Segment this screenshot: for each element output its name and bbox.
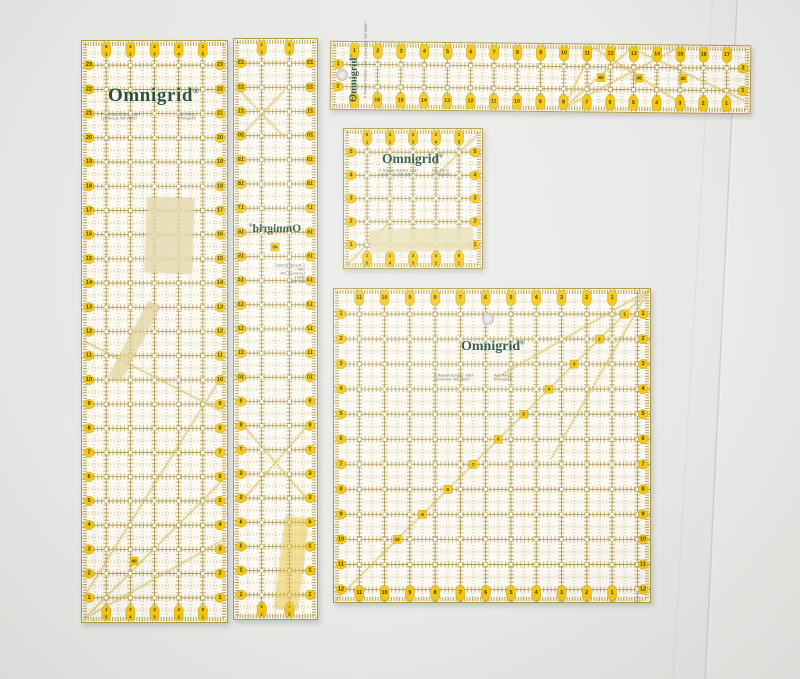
grid-number: 5 (87, 498, 90, 504)
grid-number: 13 (631, 51, 637, 57)
grid-number: 12 (86, 329, 92, 335)
grid-number: 9 (239, 399, 242, 405)
brand-text: Omnigrid (461, 339, 520, 354)
brand-omnigrid: Omnigrid® (108, 85, 200, 107)
grid-number: 16 (701, 52, 707, 58)
grid-number: 14 (237, 278, 244, 284)
grid-number: 18 (238, 181, 244, 187)
grid-number: 11 (584, 50, 590, 56)
grid-number: 8 (641, 486, 644, 492)
grid-number: 7 (472, 462, 475, 467)
grid-number: 1 (623, 312, 626, 317)
grid-number: 11 (491, 98, 497, 104)
grid-number: 2 (218, 571, 221, 577)
fine-print: © Randal Schafer 1987 Lynnwood, WA 98037 (379, 169, 418, 177)
grid-number: 7 (493, 49, 496, 55)
grid-number: 5 (218, 498, 221, 504)
grid-number: 16 (374, 97, 380, 103)
grid-number: 7 (641, 461, 644, 467)
grid-number: 22 (238, 84, 244, 90)
fine-print: Pat. Pend. Omnigrid® (494, 374, 512, 382)
fine-print: © Randal Schafer 1987 Lynnwood, WA 98037 (434, 374, 473, 382)
brand-text: Omnigrid (108, 85, 193, 106)
grid-number: 8 (434, 590, 437, 596)
grid-number: 1 (473, 242, 476, 248)
grid-number: 23 (217, 62, 223, 68)
grid-number: 15 (86, 256, 92, 262)
grid-number: 11 (356, 295, 362, 301)
grid-number: 6 (308, 471, 311, 477)
registered-mark: ® (193, 87, 200, 96)
grid-number: 1 (87, 595, 90, 601)
grid-number: 9 (87, 401, 90, 407)
grid-number: 3 (218, 546, 221, 552)
grid-number: 2 (702, 101, 705, 107)
grid-number: 3 (239, 544, 242, 550)
grid-number: 15 (677, 51, 683, 57)
grid-number: 15 (398, 98, 404, 104)
grid-number: 9 (218, 401, 221, 407)
grid-number: 7 (459, 295, 462, 301)
grid-number: 6 (469, 49, 472, 55)
grid-number: 6 (484, 295, 487, 301)
grid-number: 5 (509, 295, 512, 301)
grid-number: 12 (217, 329, 223, 335)
grid-number: 16 (307, 229, 313, 235)
grid-number: 6 (239, 471, 242, 477)
brand-text: Omnigrid (253, 223, 302, 235)
grid-number: 3 (473, 196, 476, 202)
grid-number: 17 (238, 205, 244, 211)
grid-number: 10 (382, 295, 388, 301)
grid-number: 19 (86, 159, 92, 165)
grid-number: 1 (218, 595, 221, 601)
grid-number: 3 (641, 361, 644, 367)
grid-number: 10 (395, 537, 401, 542)
grid-number: 6 (339, 436, 342, 442)
registered-mark: ® (249, 224, 253, 229)
grid-number: 13 (238, 302, 244, 308)
grid-number: 22 (86, 86, 92, 92)
ruler-3x18: 1234567891011121314151617171615141312111… (330, 41, 752, 114)
grid-number: 9 (641, 511, 644, 517)
grid-number: 3 (349, 196, 352, 202)
grid-number: 10 (561, 50, 567, 56)
grid-number: 2 (585, 590, 588, 596)
grid-number: 60 (598, 75, 604, 80)
grid-number: 8 (434, 295, 437, 301)
grid-number: 2 (641, 336, 644, 342)
grid-number: 10 (86, 377, 92, 383)
grid-number: 6 (609, 100, 612, 106)
ruler-6x6: 514233241515243342515432154321 Omnigrid®… (343, 128, 483, 269)
grid-number: 11 (640, 561, 646, 567)
brand-text: Omnigrid (348, 58, 359, 102)
grid-number: 10 (238, 374, 244, 380)
grid-number: 4 (548, 387, 551, 392)
grid-number: 14 (306, 278, 313, 284)
grid-number: 5 (473, 149, 476, 155)
grid-number: 17 (724, 52, 730, 58)
grid-number: 5 (349, 149, 352, 155)
grid-number: 13 (307, 302, 313, 308)
grid-number: 19 (307, 157, 313, 163)
grid-number: 9 (408, 295, 411, 301)
brand-omnigrid: Omnigrid® (382, 151, 443, 167)
grid-number: 2 (585, 295, 588, 301)
grid-number: 16 (86, 232, 92, 238)
grid-number: 2 (473, 219, 476, 225)
grid-number: 2 (742, 65, 745, 71)
grid-number: 22 (217, 86, 223, 92)
grid-number: 45 (272, 245, 278, 250)
grid-number: 7 (585, 99, 588, 105)
grid-number: 11 (238, 350, 244, 356)
grid-number: 19 (217, 159, 223, 165)
grid-number: 9 (539, 50, 542, 56)
grid-number: 12 (307, 326, 313, 332)
grid-number: 5 (632, 100, 635, 106)
grid-number: 5 (239, 495, 242, 501)
grid-number: 7 (239, 447, 242, 453)
grid-number: 9 (539, 99, 542, 105)
grid-number: 1 (337, 61, 340, 67)
grid-number: 5 (641, 411, 644, 417)
grid-number: 21 (238, 109, 244, 115)
grid-number: 5 (446, 49, 449, 55)
grid-number: 4 (423, 49, 426, 55)
grid-number: 6 (497, 437, 500, 442)
fine-print: © Randal Schafer 1987 Lynnwood, WA 98037 (101, 113, 140, 121)
grid-number: 2 (376, 48, 379, 54)
grid-number: 2 (87, 571, 90, 577)
grid-number: 1 (741, 88, 744, 94)
ruler-grid: 1110987654321111098765432112345678910111… (334, 289, 650, 602)
grid-number: 1 (725, 101, 728, 107)
grid-number: 8 (339, 486, 342, 492)
grid-number: 6 (87, 474, 90, 480)
grid-number: 18 (217, 183, 223, 189)
grid-number: 15 (307, 254, 313, 260)
grid-number: 11 (86, 353, 92, 359)
grid-number: 2 (308, 568, 311, 574)
grid-number: 3 (573, 362, 576, 367)
grid-number: 3 (308, 544, 311, 550)
grid-number: 17 (86, 207, 92, 213)
grid-number: 3 (339, 361, 342, 367)
grid-number: 20 (307, 133, 313, 139)
grid-number: 10 (217, 377, 223, 383)
grid-number: 3 (87, 546, 90, 552)
grid-number: 6 (641, 436, 644, 442)
ruler-grid: 1234567891011121314151617171615141312111… (331, 42, 751, 113)
grid-number: 1 (339, 311, 342, 317)
grid-number: 14 (654, 51, 660, 57)
registered-mark: ® (439, 154, 443, 160)
grid-number: 6 (218, 474, 221, 480)
grid-number: 11 (217, 353, 223, 359)
grid-number: 23 (238, 60, 244, 66)
grid-number: 6 (484, 590, 487, 596)
grid-number: 3 (560, 590, 563, 596)
grid-number: 3 (560, 295, 563, 301)
grid-number: 14 (421, 98, 427, 104)
grid-number: 5 (308, 495, 311, 501)
grid-number: 8 (446, 487, 449, 492)
registered-mark: ® (348, 54, 353, 57)
grid-number: 8 (308, 423, 311, 429)
grid-number: 5 (339, 411, 342, 417)
grid-number: 20 (238, 133, 244, 139)
brand-text: Omnigrid (382, 151, 439, 166)
grid-number: 20 (86, 135, 92, 141)
grid-number: 4 (535, 295, 538, 301)
grid-number: 2 (239, 568, 242, 574)
grid-number: 5 (509, 590, 512, 596)
grid-number: 60 (131, 559, 137, 564)
grid-number: 12 (467, 98, 473, 104)
grid-number: 5 (522, 412, 525, 417)
grid-number: 11 (307, 350, 313, 356)
grid-number: 1 (353, 48, 356, 54)
grid-number: 3 (678, 100, 681, 106)
grid-number: 13 (217, 304, 223, 310)
brand-omnigrid: Omnigrid® (461, 339, 525, 355)
grid-number: 23 (307, 60, 313, 66)
grid-number: 8 (239, 423, 242, 429)
grid-number: 7 (218, 450, 221, 456)
grid-number: 12 (338, 586, 344, 592)
grid-number: 11 (338, 561, 344, 567)
grid-number: 9 (308, 399, 311, 405)
grid-number: 23 (86, 62, 92, 68)
grid-number: 7 (459, 590, 462, 596)
grid-number: 10 (514, 99, 520, 105)
grid-number: 10 (338, 536, 344, 542)
grid-number: 1 (308, 592, 311, 598)
grid-number: 2 (336, 84, 339, 90)
grid-number: 14 (86, 280, 93, 286)
grid-number: 10 (640, 536, 646, 542)
grid-number: 45 (636, 76, 642, 81)
grid-number: 10 (307, 374, 313, 380)
grid-number: 8 (562, 99, 565, 105)
grid-number: 9 (408, 590, 411, 596)
grid-number: 12 (608, 51, 614, 57)
grid-number: 13 (86, 304, 92, 310)
grid-number: 1 (611, 295, 614, 301)
grid-number: 2 (339, 336, 342, 342)
grid-number: 15 (217, 256, 223, 262)
brand-omnigrid-mirrored: Omnigrid® (249, 223, 301, 235)
grid-number: 2 (598, 337, 601, 342)
grid-number: 1 (611, 590, 614, 596)
grid-number: 21 (86, 111, 92, 117)
grid-number: 14 (217, 280, 224, 286)
grid-number: 4 (655, 100, 658, 106)
registered-mark: ® (520, 340, 524, 346)
photo-of-quilting-rulers: 5142332415152433425123222120191817161514… (0, 0, 800, 679)
ruler-grid: 5142332415152433425123222120191817161514… (82, 41, 227, 622)
grid-number: 4 (535, 590, 538, 596)
grid-number: 9 (421, 512, 424, 517)
ruler-6x24: 5142332415152433425123222120191817161514… (81, 40, 228, 623)
grid-number: 1 (239, 592, 242, 598)
grid-number: 7 (308, 447, 311, 453)
grid-number: 16 (238, 229, 244, 235)
grid-number: 8 (218, 425, 221, 431)
brand-omnigrid-vertical: Omnigrid® (348, 54, 360, 102)
grid-number: 8 (516, 50, 519, 56)
grid-number: 3 (400, 49, 403, 55)
fine-print: © Randal Schafer 1987 Lynnwood, WA 98037 (364, 22, 369, 99)
grid-number: 17 (217, 207, 223, 213)
grid-number: 7 (87, 450, 90, 456)
grid-number: 16 (217, 232, 223, 238)
grid-number: 30 (680, 76, 686, 81)
fine-print: Pat. Pend. Omnigrid® (432, 169, 450, 177)
grid-number: 20 (217, 135, 223, 141)
ruler-3x24-flipped: 1221211223222120191817161514131211109876… (233, 38, 318, 620)
grid-number: 1 (641, 311, 644, 317)
grid-number: 19 (238, 157, 244, 163)
masking-tape-patch (145, 197, 195, 274)
grid-number: 22 (307, 84, 313, 90)
grid-number: 21 (307, 109, 313, 115)
fine-print: © Randal Schafer 1987 Lynnwood, WA 98037… (272, 264, 305, 284)
grid-number: 18 (307, 181, 313, 187)
ruler-12x12: 1110987654321111098765432112345678910111… (333, 288, 651, 603)
grid-number: 8 (87, 425, 90, 431)
grid-number: 2 (349, 219, 352, 225)
grid-number: 18 (86, 183, 92, 189)
grid-number: 12 (238, 326, 244, 332)
grid-number: 21 (217, 111, 223, 117)
grid-number: 17 (307, 205, 313, 211)
grid-number: 1 (349, 242, 352, 248)
masking-tape-strip (370, 228, 474, 253)
grid-number: 13 (444, 98, 450, 104)
grid-number: 12 (640, 586, 646, 592)
fine-print: Pat. Pend. Omnigrid® (178, 113, 196, 121)
grid-number: 7 (339, 461, 342, 467)
grid-number: 15 (238, 254, 244, 260)
grid-number: 11 (356, 590, 362, 596)
grid-number: 10 (382, 590, 388, 596)
grid-number: 9 (339, 511, 342, 517)
